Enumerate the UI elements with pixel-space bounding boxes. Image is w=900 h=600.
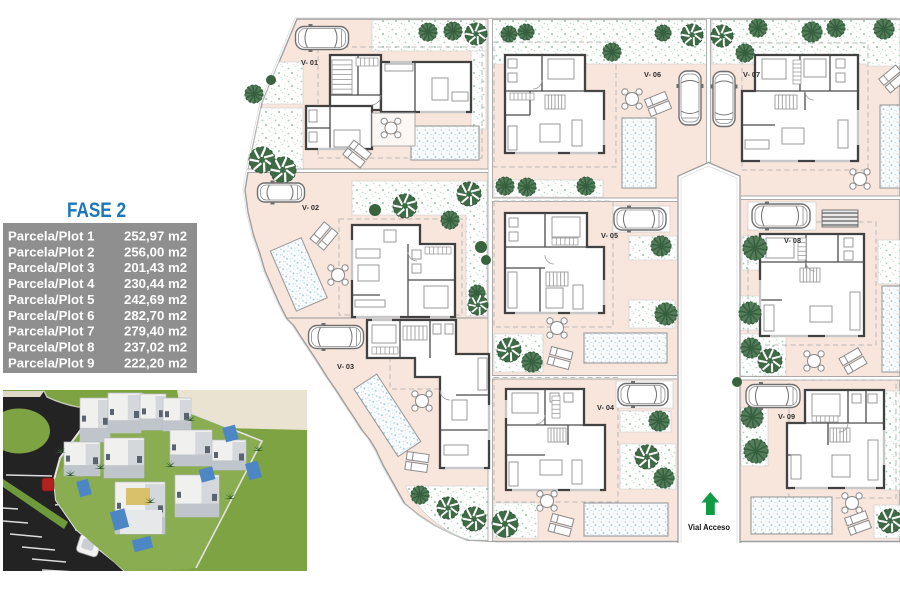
svg-text:Parcela/Plot 4: Parcela/Plot 4: [8, 276, 95, 291]
svg-text:222,20 m2: 222,20 m2: [124, 355, 187, 370]
svg-text:V- 03: V- 03: [337, 362, 354, 371]
svg-text:FASE 2: FASE 2: [67, 199, 126, 222]
svg-text:V- 04: V- 04: [597, 403, 615, 412]
svg-text:V- 02: V- 02: [302, 203, 319, 212]
svg-text:Vial Acceso: Vial Acceso: [688, 522, 730, 532]
svg-text:Parcela/Plot 1: Parcela/Plot 1: [8, 229, 95, 244]
svg-text:Parcela/Plot 5: Parcela/Plot 5: [8, 292, 95, 307]
svg-text:Parcela/Plot 7: Parcela/Plot 7: [8, 324, 95, 339]
svg-text:V- 01: V- 01: [301, 58, 318, 67]
svg-text:V- 09: V- 09: [778, 412, 795, 421]
svg-text:237,02 m2: 237,02 m2: [124, 339, 187, 354]
svg-text:242,69 m2: 242,69 m2: [124, 292, 187, 307]
svg-text:Parcela/Plot 8: Parcela/Plot 8: [8, 339, 95, 354]
svg-text:256,00 m2: 256,00 m2: [124, 244, 187, 259]
svg-text:V- 05: V- 05: [601, 231, 618, 240]
svg-text:201,43 m2: 201,43 m2: [124, 260, 187, 275]
svg-text:V- 08: V- 08: [784, 236, 801, 245]
svg-text:Parcela/Plot 6: Parcela/Plot 6: [8, 308, 95, 323]
svg-text:252,97 m2: 252,97 m2: [124, 229, 187, 244]
svg-text:V- 06: V- 06: [644, 70, 661, 79]
svg-text:Parcela/Plot 3: Parcela/Plot 3: [8, 260, 95, 275]
svg-text:Parcela/Plot 9: Parcela/Plot 9: [8, 355, 95, 370]
svg-text:230,44 m2: 230,44 m2: [124, 276, 187, 291]
svg-text:282,70 m2: 282,70 m2: [124, 308, 187, 323]
svg-text:V- 07: V- 07: [743, 70, 760, 79]
svg-text:Parcela/Plot 2: Parcela/Plot 2: [8, 244, 95, 259]
svg-text:279,40 m2: 279,40 m2: [124, 324, 187, 339]
